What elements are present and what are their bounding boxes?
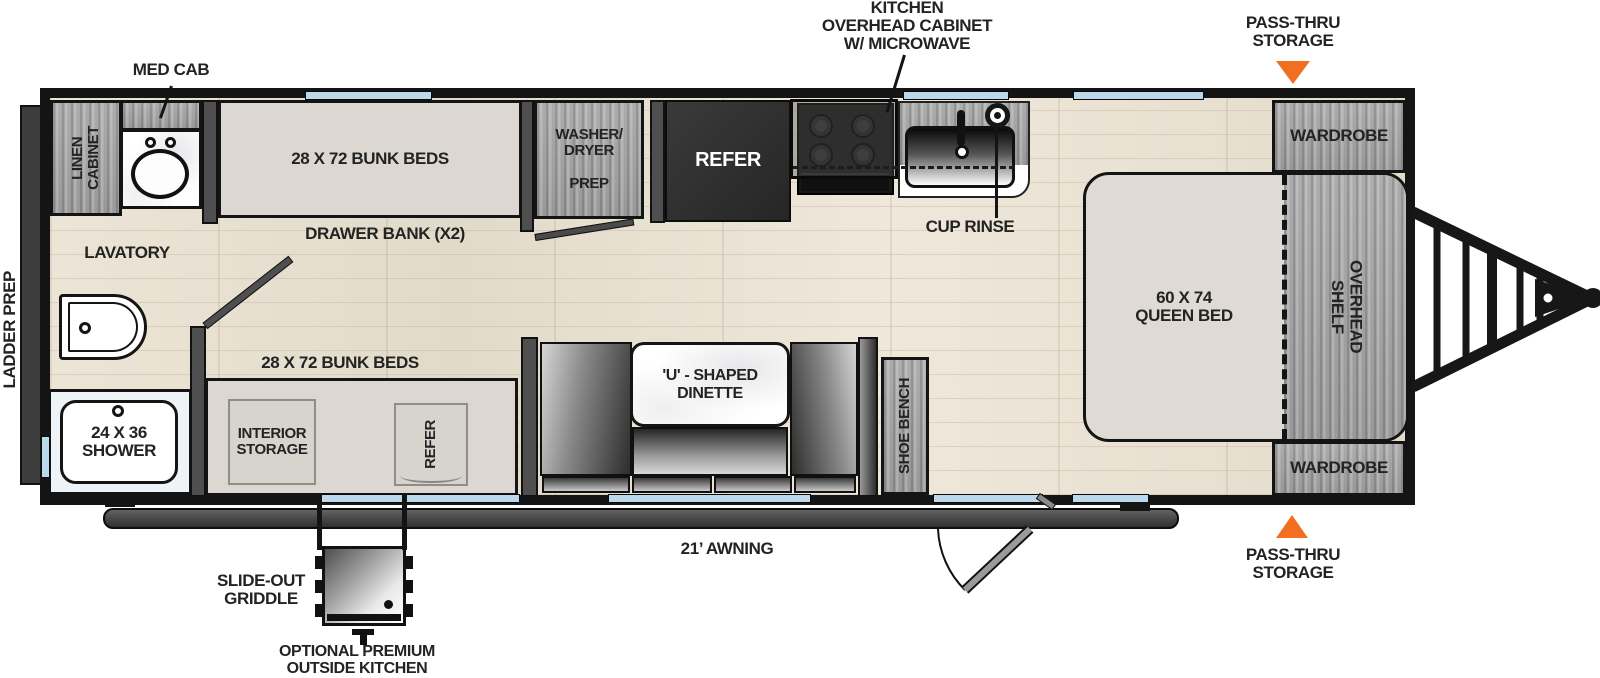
washer-dryer-label: WASHER/ DRYER PREP xyxy=(555,127,622,192)
wall-washer-refer xyxy=(650,100,665,223)
bath-sink-bowl-icon xyxy=(131,149,189,199)
griddle-hinge xyxy=(406,604,413,617)
entry-step xyxy=(1120,502,1150,511)
dinette-bench-right xyxy=(790,342,858,476)
dinette-label: 'U' - SHAPED DINETTE xyxy=(662,367,757,402)
pass-thru-arrow-down-icon xyxy=(1276,61,1310,84)
window-top-bedroom xyxy=(1073,91,1204,100)
window-top-bunk xyxy=(305,91,432,100)
window-bottom-bunk xyxy=(318,494,520,503)
window-rear-shower xyxy=(41,436,50,478)
faucet-icon xyxy=(957,110,965,146)
dinette-table: 'U' - SHAPED DINETTE xyxy=(630,342,790,427)
wall-lav-bunkbottom xyxy=(190,326,206,497)
griddle-hinge xyxy=(406,580,413,593)
stabilizer-jack xyxy=(105,496,135,507)
lavatory-label: LAVATORY xyxy=(84,244,170,262)
ladder-prep-label: LADDER PREP xyxy=(1,271,19,388)
floorplan-canvas: LINEN CABINET 24 X 36 SHOWER 28 X 72 BUN… xyxy=(0,0,1600,678)
rear-bumper xyxy=(20,105,42,485)
ladder-prep-label-wrap: LADDER PREP xyxy=(0,228,22,432)
dinette-cushion xyxy=(632,476,712,493)
pass-thru-storage-top-label: PASS-THRU STORAGE xyxy=(1246,14,1340,50)
window-bottom-entry-left xyxy=(933,494,1043,503)
slide-out-griddle-icon xyxy=(322,546,406,626)
window-top-kitchen xyxy=(903,91,1009,100)
trailer-tongue-hitch-icon xyxy=(1405,195,1600,405)
griddle-rail xyxy=(402,494,407,550)
shower-enclosure: 24 X 36 SHOWER xyxy=(48,389,192,495)
dinette-cushion xyxy=(714,476,792,493)
slide-out-griddle-label: SLIDE-OUT GRIDDLE xyxy=(217,572,305,608)
wardrobe-top: WARDROBE xyxy=(1272,100,1406,173)
wall-bath-bunk xyxy=(202,100,218,224)
cup-rinse-label: CUP RINSE xyxy=(926,218,1015,236)
overhead-shelf-label: OVERHEAD SHELF xyxy=(1328,260,1365,353)
griddle-knob-icon xyxy=(384,600,393,609)
griddle-rail xyxy=(317,494,322,550)
toilet-icon xyxy=(59,294,147,360)
bunk-beds-bottom: INTERIOR STORAGE REFER xyxy=(205,378,518,496)
pass-thru-storage-bottom-label: PASS-THRU STORAGE xyxy=(1246,546,1340,582)
wardrobe-top-label: WARDROBE xyxy=(1290,127,1388,145)
interior-storage: INTERIOR STORAGE xyxy=(228,399,316,485)
bunk-bottom-label: 28 X 72 BUNK BEDS xyxy=(261,354,419,372)
outside-kitchen-label: OPTIONAL PREMIUM OUTSIDE KITCHEN xyxy=(279,644,435,678)
faucet-dot-icon xyxy=(145,137,156,148)
dinette-cushion xyxy=(794,476,856,493)
shower-label: 24 X 36 SHOWER xyxy=(82,424,156,461)
refrigerator-main: REFER xyxy=(665,100,791,222)
awning-label: 21’ AWNING xyxy=(681,540,774,558)
kitchen-overhead-cabinet-label: KITCHEN OVERHEAD CABINET W/ MICROWAVE xyxy=(822,0,992,53)
cup-rinse-icon xyxy=(985,103,1010,128)
overhead-cabinet-dashed-line xyxy=(793,166,1015,169)
wall-dinette-right xyxy=(858,337,878,497)
bath-sink-counter xyxy=(120,129,202,209)
dinette-bench-bottom xyxy=(632,427,788,476)
wardrobe-bottom: WARDROBE xyxy=(1272,441,1406,496)
shoe-bench-label: SHOE BENCH xyxy=(897,378,913,474)
dinette-bench-left xyxy=(540,342,632,476)
griddle-hinge xyxy=(406,556,413,569)
toilet-flush-icon xyxy=(79,322,91,334)
entry-door-swing-icon xyxy=(920,520,1050,600)
window-bottom-dinette xyxy=(608,494,811,503)
cup-rinse-pointer-line xyxy=(995,128,998,218)
queen-bed: 60 X 74 QUEEN BED OVERHEAD SHELF xyxy=(1083,172,1409,442)
bunk-top-label: 28 X 72 BUNK BEDS xyxy=(291,150,449,168)
shoe-bench: SHOE BENCH xyxy=(881,357,929,495)
shower-drain-icon xyxy=(112,405,124,417)
linen-cabinet-label: LINEN CABINET xyxy=(70,126,102,190)
linen-cabinet: LINEN CABINET xyxy=(50,100,122,216)
griddle-bottom-strip xyxy=(327,614,401,621)
refer-bunk-label: REFER xyxy=(423,420,439,469)
bunk-beds-top: 28 X 72 BUNK BEDS xyxy=(218,100,522,218)
griddle-hinge xyxy=(315,580,322,593)
wall-bunk-washer xyxy=(520,100,534,232)
pass-thru-arrow-up-icon xyxy=(1276,515,1308,538)
refer-main-label: REFER xyxy=(695,150,761,172)
refer-bunk-door-arc xyxy=(400,469,462,483)
faucet-knob-icon xyxy=(955,145,969,159)
interior-storage-label: INTERIOR STORAGE xyxy=(236,426,307,458)
griddle-hinge xyxy=(315,556,322,569)
dinette-cushion xyxy=(542,476,630,493)
faucet-dot-icon xyxy=(165,137,176,148)
med-cab-label: MED CAB xyxy=(133,61,210,79)
drawer-bank-label: DRAWER BANK (X2) xyxy=(305,225,465,243)
washer-dryer-prep: WASHER/ DRYER PREP xyxy=(534,100,644,219)
wall-dinette-left xyxy=(521,337,538,497)
griddle-hinge xyxy=(315,604,322,617)
queen-bed-label: 60 X 74 QUEEN BED xyxy=(1135,289,1232,326)
wardrobe-bottom-label: WARDROBE xyxy=(1290,459,1388,477)
refrigerator-bunk: REFER xyxy=(394,403,468,486)
